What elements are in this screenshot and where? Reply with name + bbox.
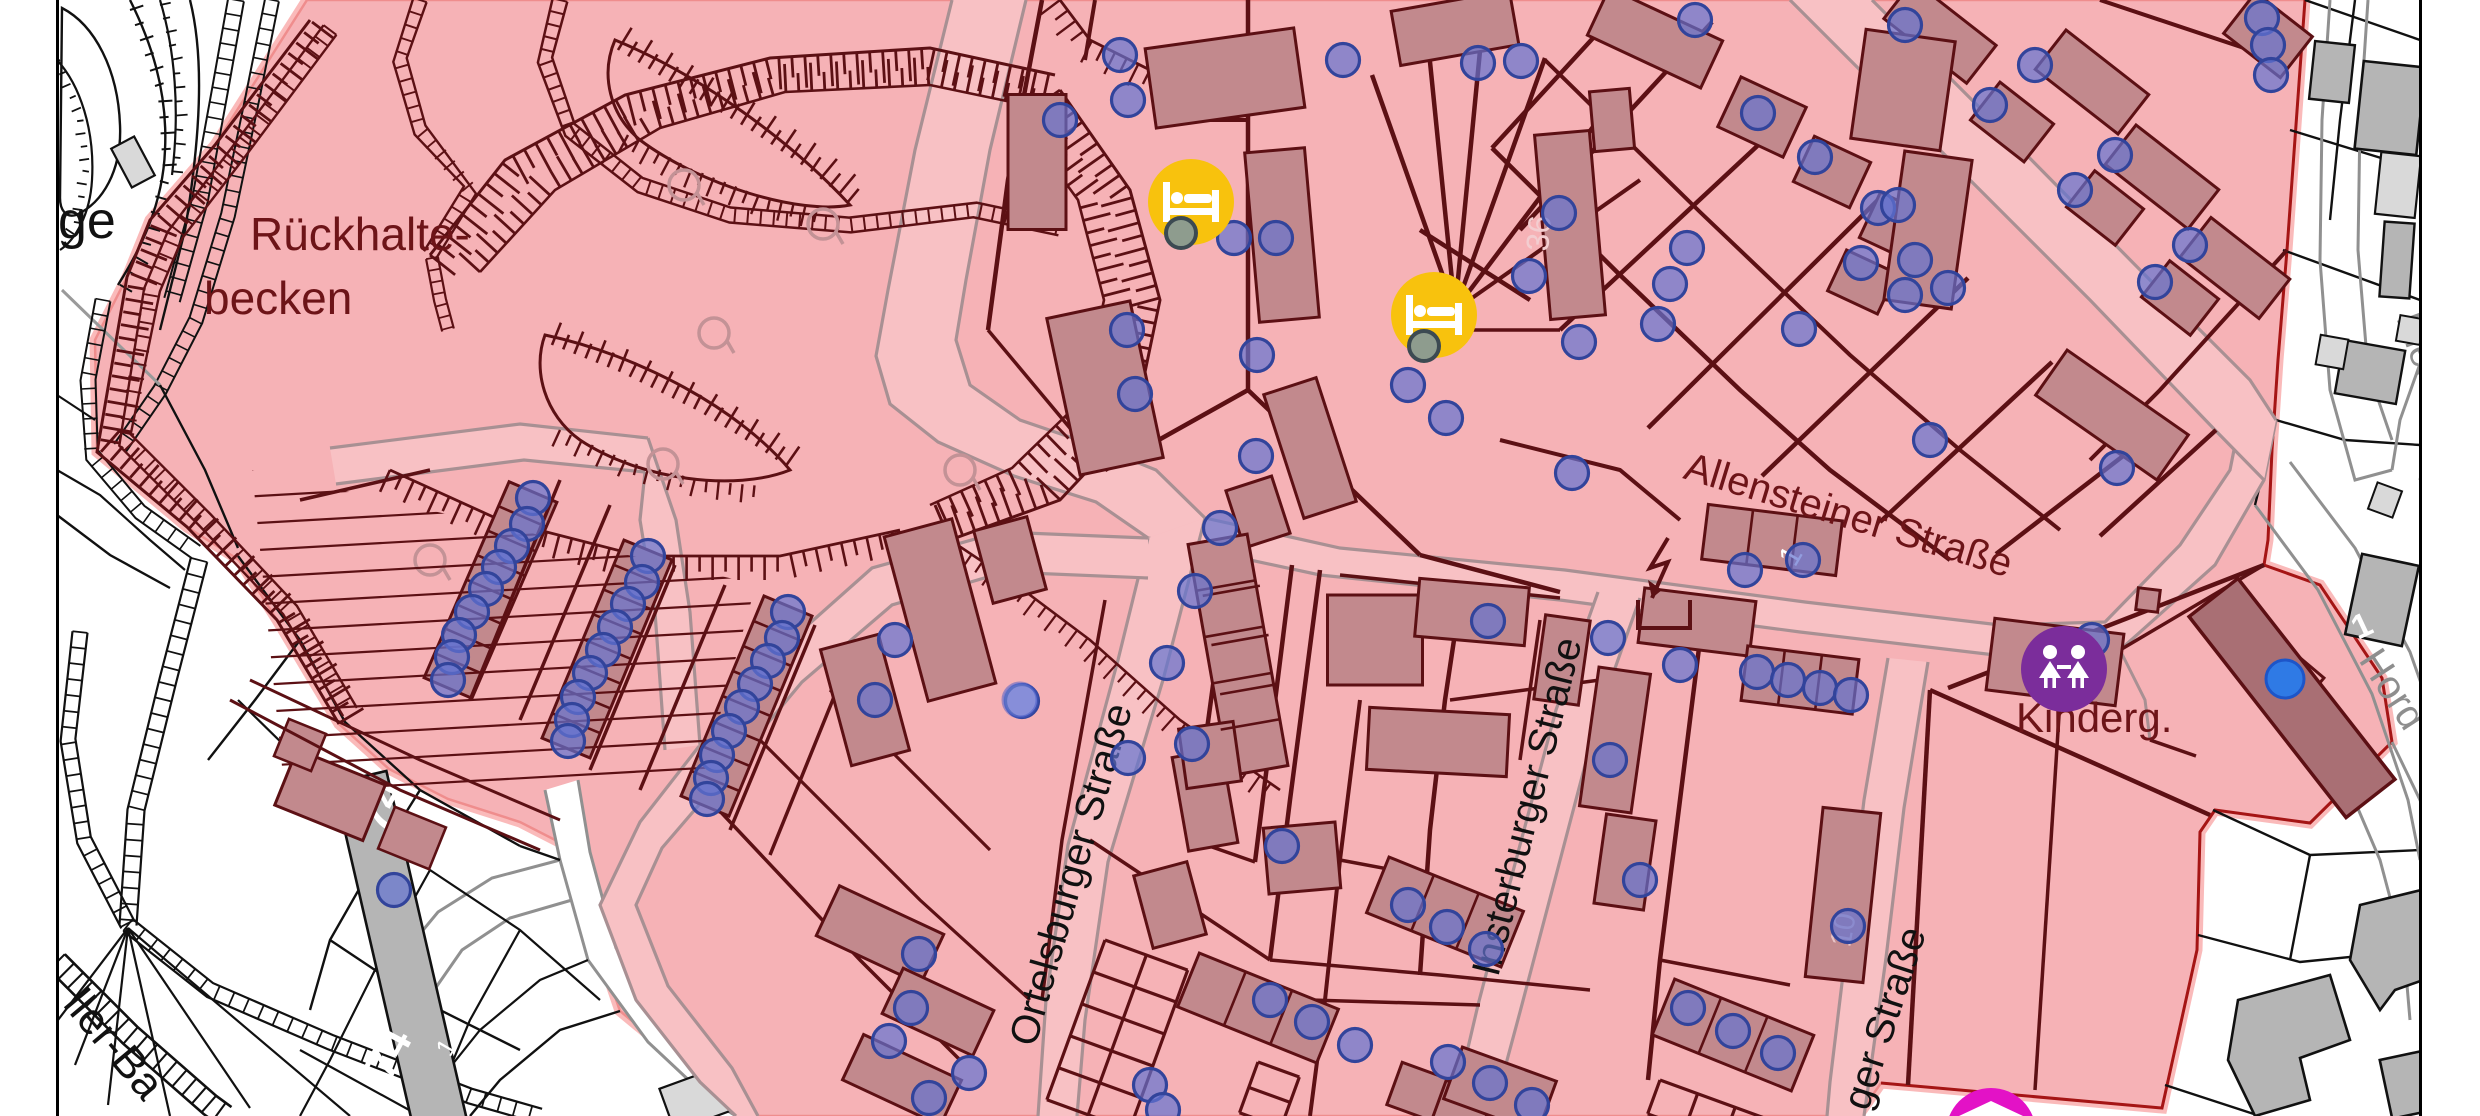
svg-text:Rückhalte-: Rückhalte-	[250, 208, 470, 260]
svg-text:becken: becken	[204, 272, 352, 324]
svg-text:ge: ge	[58, 192, 116, 250]
